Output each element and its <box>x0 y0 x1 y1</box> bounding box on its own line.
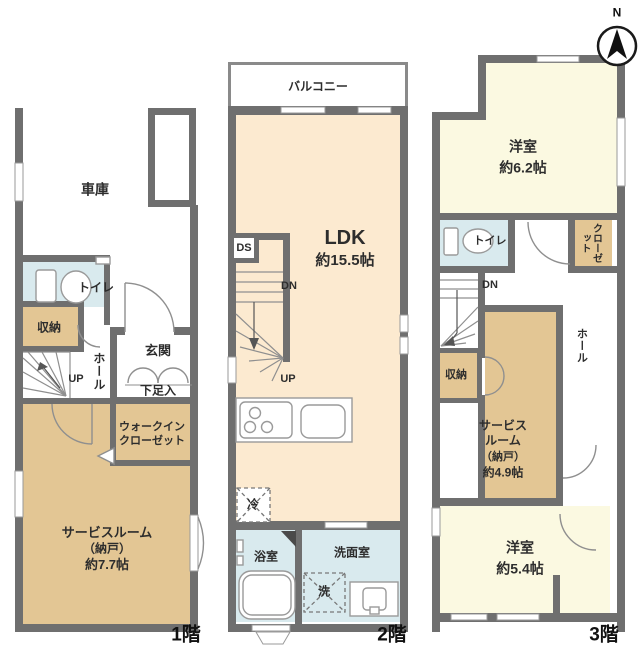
floor-plan-canvas: 車庫 トイレ 収納 ホール UP 玄関 下足入 ウォークイン クローゼット サー… <box>0 0 642 662</box>
label-room54-name: 洋室 <box>506 540 534 555</box>
label-room62-name: 洋室 <box>509 139 537 154</box>
garage-door-arc <box>125 283 174 332</box>
label-dn-2f: DN <box>281 280 297 292</box>
compass-icon <box>598 27 636 65</box>
floor1-label: 1階 <box>171 626 201 647</box>
label-service-1f-sub: （納戸） <box>83 542 131 555</box>
label-closet-3f: クローゼット <box>579 223 602 263</box>
label-service-3f-line2: ルーム <box>485 434 521 447</box>
exterior-step <box>256 632 290 644</box>
compass-north-label: N <box>613 6 622 19</box>
label-up-1f: UP <box>68 373 83 385</box>
label-bathroom: 浴室 <box>254 550 278 563</box>
label-toilet-1f: トイレ <box>78 281 114 294</box>
label-storage-1f: 収納 <box>37 321 61 334</box>
outward-door-arc <box>198 517 204 569</box>
label-fridge: 冷 <box>247 498 259 511</box>
floor2-room-fills <box>236 112 400 622</box>
label-dn-3f: DN <box>482 279 498 291</box>
mini-basin-icon <box>96 257 110 264</box>
floor2-label: 2階 <box>377 626 407 647</box>
hall-door-arc <box>563 445 596 478</box>
label-toilet-3f: トイレ <box>474 235 507 247</box>
label-garage: 車庫 <box>81 182 109 197</box>
label-ldk-size: 約15.5帖 <box>315 253 374 270</box>
floor3-label: 3階 <box>589 626 619 647</box>
label-service-3f-line4: 約4.9帖 <box>483 466 524 479</box>
label-washer: 洗 <box>318 585 330 598</box>
label-wic-line2: クローゼット <box>119 435 185 447</box>
toilet-hall-door-arc <box>528 222 570 264</box>
sink-icon <box>301 405 345 438</box>
label-ldk-name: LDK <box>324 227 365 249</box>
label-hall-3f: ホール <box>575 321 588 371</box>
label-service-3f-line3: （納戸） <box>481 451 525 463</box>
label-service-1f-name: サービスルーム <box>62 526 153 540</box>
floor1-stairs <box>23 352 70 398</box>
label-hall-1f: ホール <box>91 345 105 397</box>
kitchen-counter <box>236 398 352 442</box>
shoe-cabinet-door-arc <box>158 368 188 383</box>
label-room62-size: 約6.2帖 <box>499 160 546 175</box>
label-wic-line1: ウォークイン <box>119 421 185 433</box>
label-service-1f-size: 約7.7帖 <box>85 558 129 572</box>
label-duct-space: DS <box>236 242 251 254</box>
shoe-cabinet-door-arc <box>128 368 158 383</box>
label-up-2f: UP <box>280 373 295 385</box>
washbasin-icon <box>350 582 398 616</box>
label-service-3f-line1: サービス <box>479 419 527 432</box>
floor3-stairs <box>440 280 478 346</box>
label-washroom: 洗面室 <box>334 546 370 559</box>
label-entrance: 玄関 <box>145 344 171 358</box>
label-room54-size: 約5.4帖 <box>496 561 543 576</box>
floor3-plan <box>432 27 636 632</box>
label-balcony: バルコニー <box>288 80 348 93</box>
label-shoe-cabinet: 下足入 <box>140 384 176 397</box>
label-storage-3f: 収納 <box>445 369 467 381</box>
